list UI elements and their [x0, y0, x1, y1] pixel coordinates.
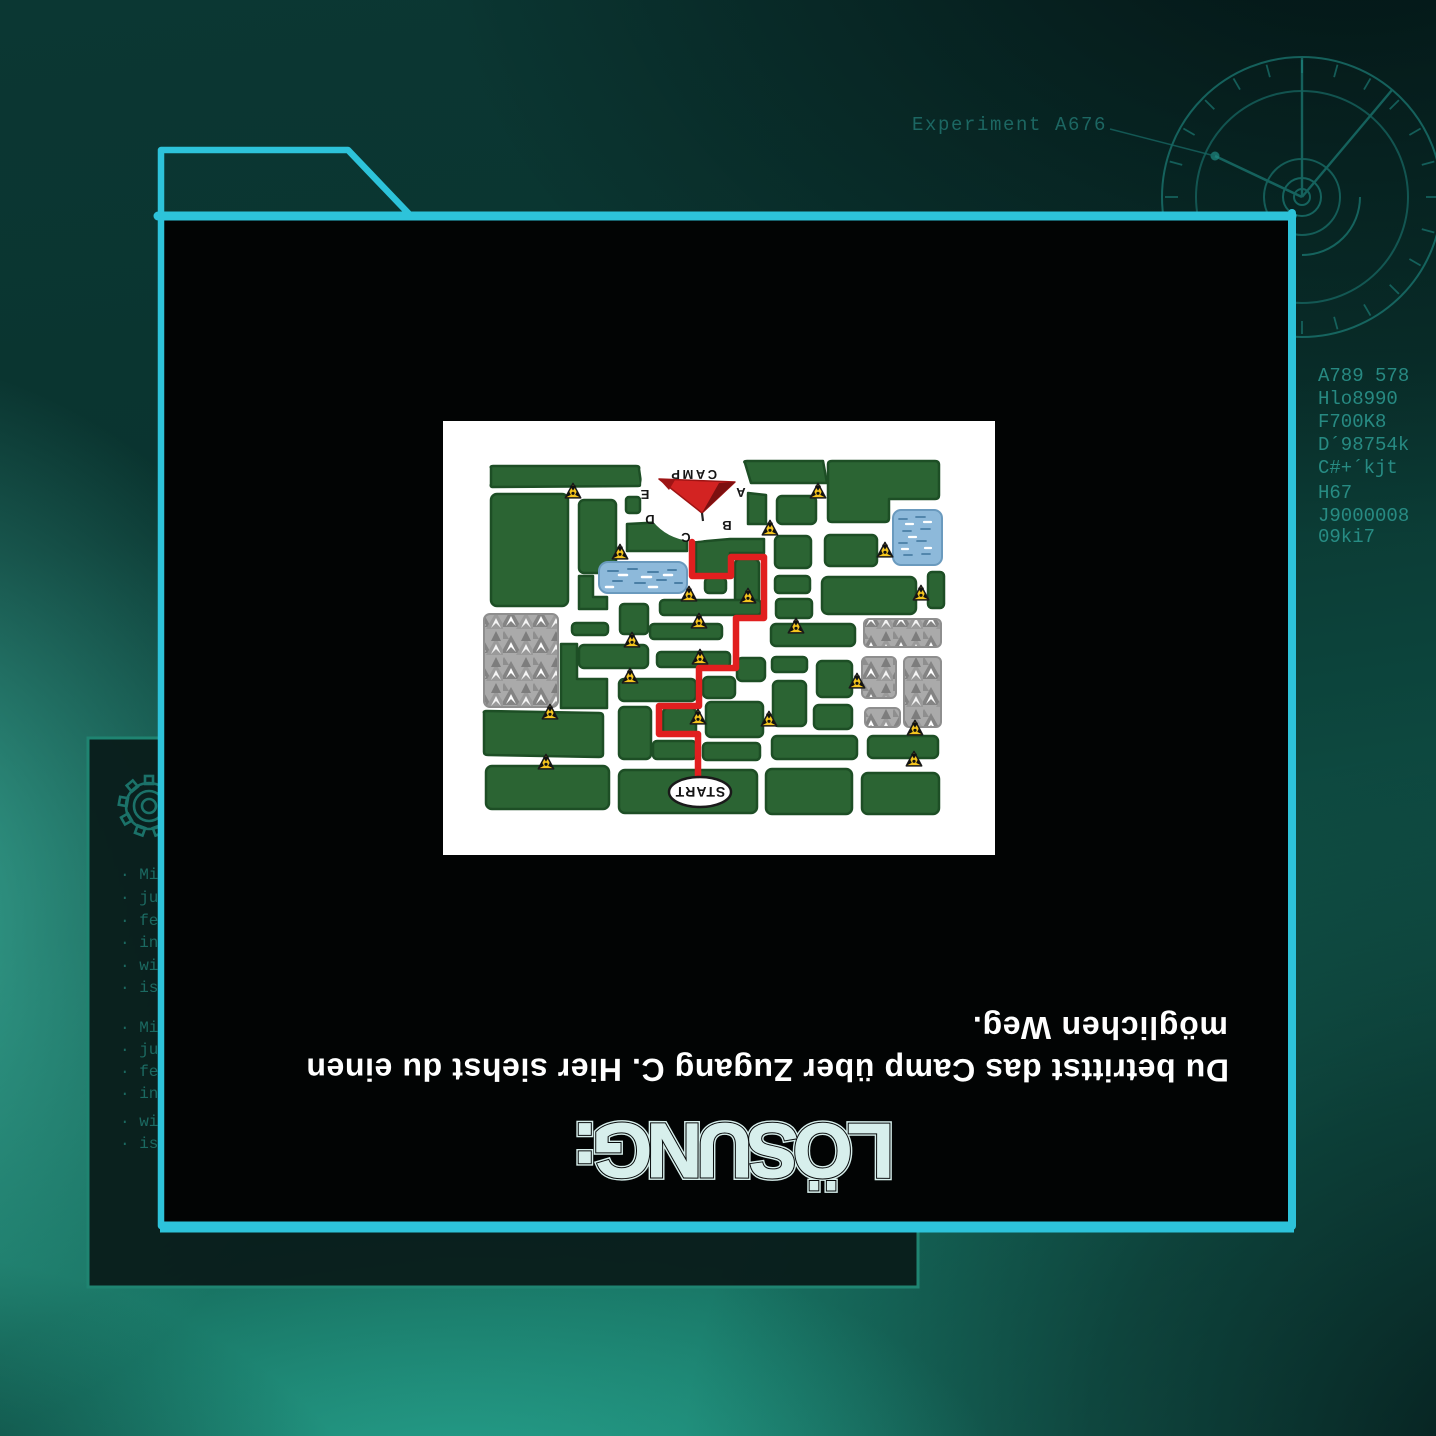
- svg-text:B: B: [722, 518, 731, 533]
- svg-text:E: E: [640, 487, 649, 502]
- svg-text:D: D: [645, 512, 654, 527]
- svg-text:START: START: [675, 784, 726, 800]
- svg-text:A: A: [736, 485, 746, 500]
- svg-text:CAMP: CAMP: [669, 467, 717, 482]
